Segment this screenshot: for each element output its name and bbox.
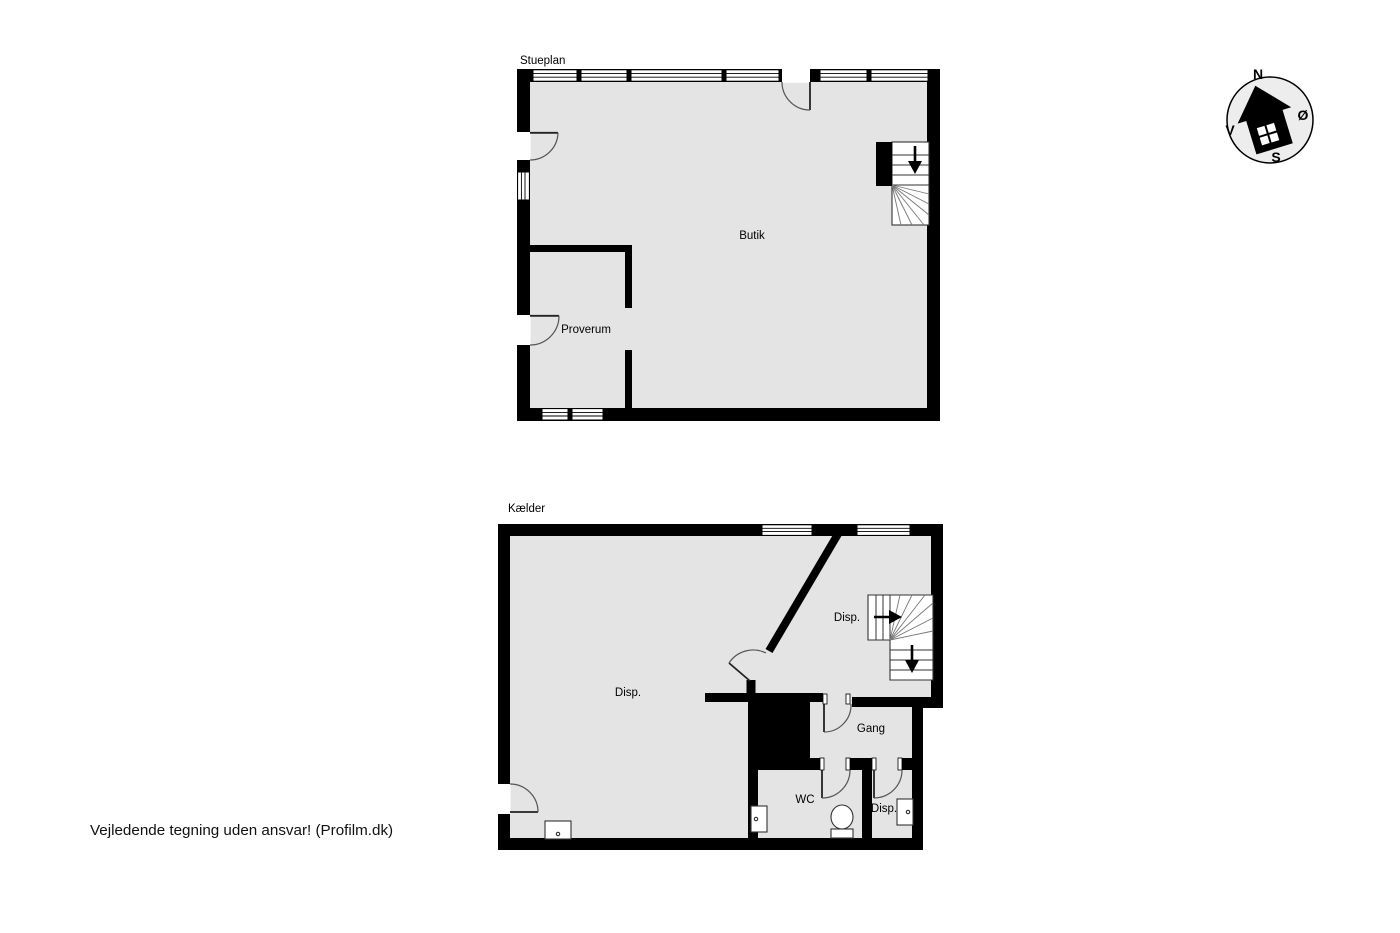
room-label-disp-upper: Disp.: [834, 612, 860, 624]
room-label-proverum: Proverum: [561, 324, 611, 336]
chimney-block: [748, 700, 810, 762]
compass-rose: N Ø S V: [1225, 66, 1313, 165]
window: [820, 70, 867, 81]
kaelder-plan: Kælder: [497, 503, 943, 850]
window: [871, 70, 928, 81]
compass-south-label: S: [1271, 149, 1280, 165]
compass-east-label: Ø: [1298, 107, 1309, 123]
disclaimer-text: Vejledende tegning uden ansvar! (Profilm…: [90, 822, 393, 839]
window: [581, 70, 627, 81]
kaelder-floor: [498, 524, 943, 850]
sink: [897, 799, 913, 825]
floorplan-drawing: Stueplan: [0, 0, 1400, 933]
window: [518, 172, 530, 200]
window: [726, 70, 779, 81]
compass-west-label: V: [1225, 122, 1235, 138]
room-label-disp-main: Disp.: [615, 687, 641, 699]
sink: [545, 821, 571, 839]
stair-side-wall: [876, 142, 892, 186]
stueplan-plan: Stueplan: [516, 55, 940, 421]
floorplan-page: Stueplan: [0, 0, 1400, 933]
kaelder-title: Kælder: [508, 503, 545, 515]
room-label-disp-lower: Disp.: [871, 803, 897, 815]
window: [572, 409, 603, 420]
window: [542, 409, 568, 420]
compass-north-label: N: [1253, 66, 1263, 82]
window: [857, 525, 910, 536]
room-label-gang: Gang: [857, 723, 885, 735]
sink: [751, 806, 767, 832]
room-label-butik: Butik: [739, 230, 765, 242]
window: [533, 70, 577, 81]
window: [762, 525, 812, 536]
window: [631, 70, 722, 81]
toilet: [831, 805, 853, 838]
room-label-wc: WC: [795, 794, 814, 806]
stueplan-title: Stueplan: [520, 55, 565, 67]
